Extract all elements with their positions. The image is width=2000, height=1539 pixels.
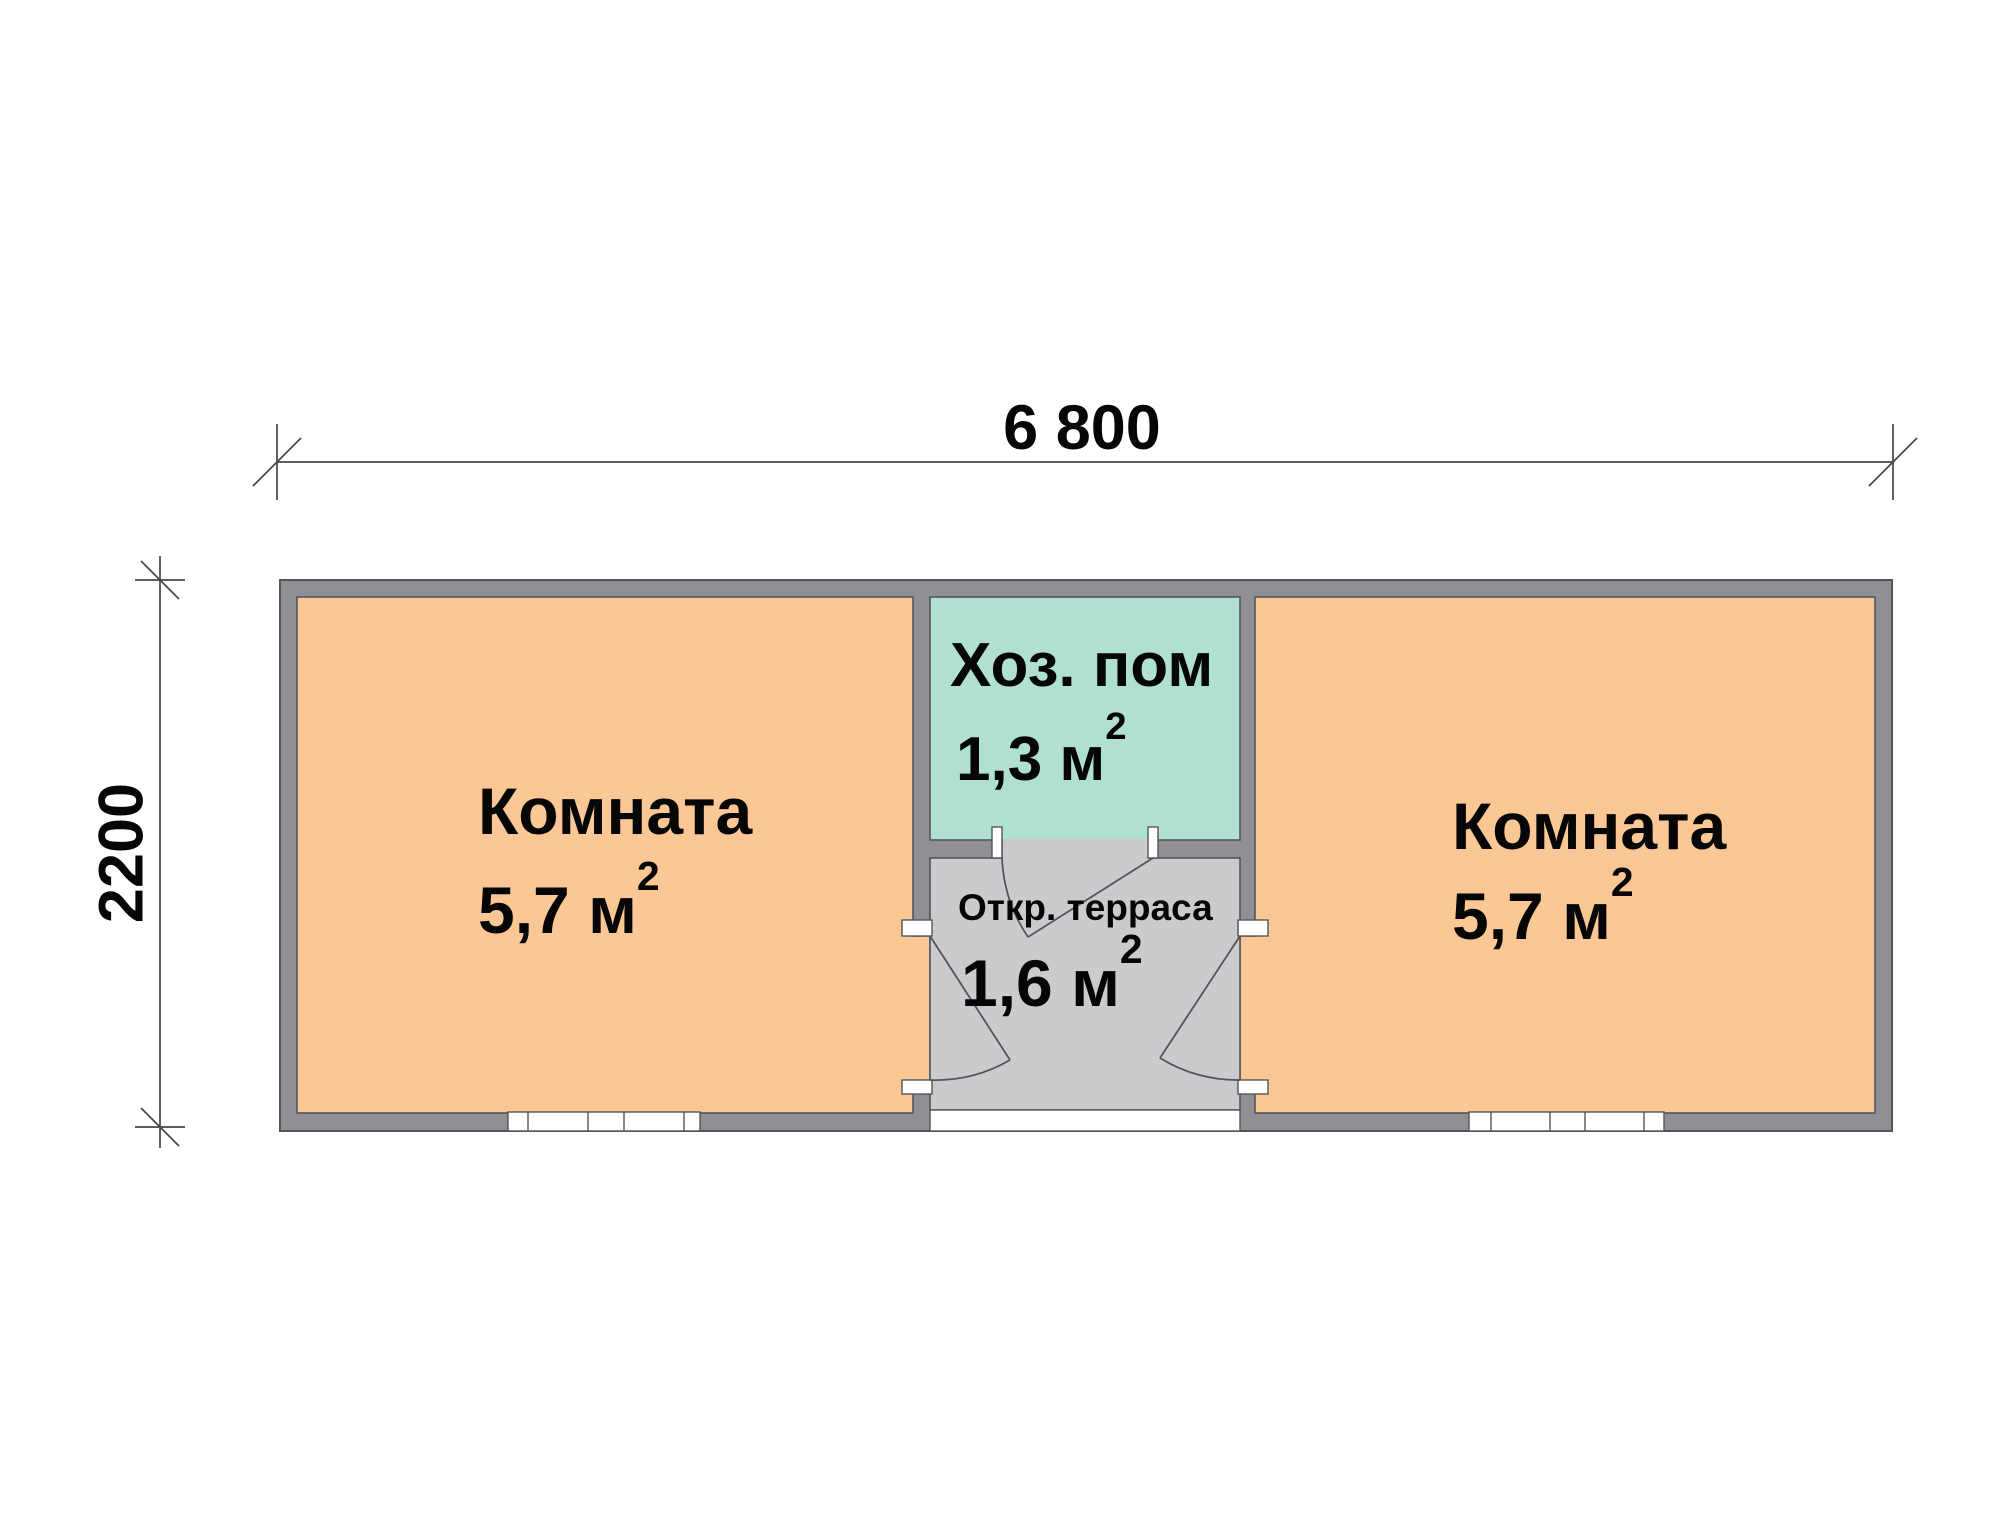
terrace-area: 1,6 м2 (961, 950, 1143, 1016)
right-door-jamb-top (1238, 920, 1268, 936)
left-door-jamb-top (902, 920, 932, 936)
window-right-room (1469, 1112, 1664, 1131)
room-right-name: Комната (1452, 793, 1726, 859)
utility-room-name: Хоз. пом (950, 635, 1213, 697)
terrace-area-value: 1,6 м (961, 946, 1120, 1020)
room-right-area-value: 5,7 м (1452, 879, 1611, 953)
room-left-name: Комната (478, 778, 752, 844)
doorway-left-room-opening (911, 937, 929, 1080)
terrace-area-exponent: 2 (1120, 926, 1143, 972)
utility-door-jamb-left (992, 827, 1002, 858)
terrace-front-opening (930, 1110, 1240, 1131)
room-left-floor (297, 597, 913, 1113)
doorway-utility-opening (1003, 839, 1148, 860)
doorway-right-room-opening (1241, 937, 1257, 1080)
utility-room-area: 1,3 м2 (956, 729, 1127, 791)
utility-room-area-value: 1,3 м (956, 725, 1105, 794)
floor-plan-page: 6 800 2200 Комната 5,7 м2 Комната 5,7 м2… (0, 0, 2000, 1539)
dimension-width-label: 6 800 (1003, 397, 1161, 460)
room-left-area-value: 5,7 м (478, 873, 637, 947)
room-right-area-exponent: 2 (1611, 859, 1634, 905)
dimension-height-label: 2200 (91, 783, 154, 923)
room-left-area-exponent: 2 (637, 853, 660, 899)
window-left-room (508, 1112, 700, 1131)
room-right-area: 5,7 м2 (1452, 883, 1634, 949)
terrace-name: Откр. терраса (958, 889, 1213, 926)
room-left-area: 5,7 м2 (478, 877, 660, 943)
utility-room-area-exponent: 2 (1105, 705, 1126, 748)
utility-door-jamb-right (1148, 827, 1158, 858)
right-door-jamb-bottom (1238, 1080, 1268, 1094)
left-door-jamb-bottom (902, 1080, 932, 1094)
